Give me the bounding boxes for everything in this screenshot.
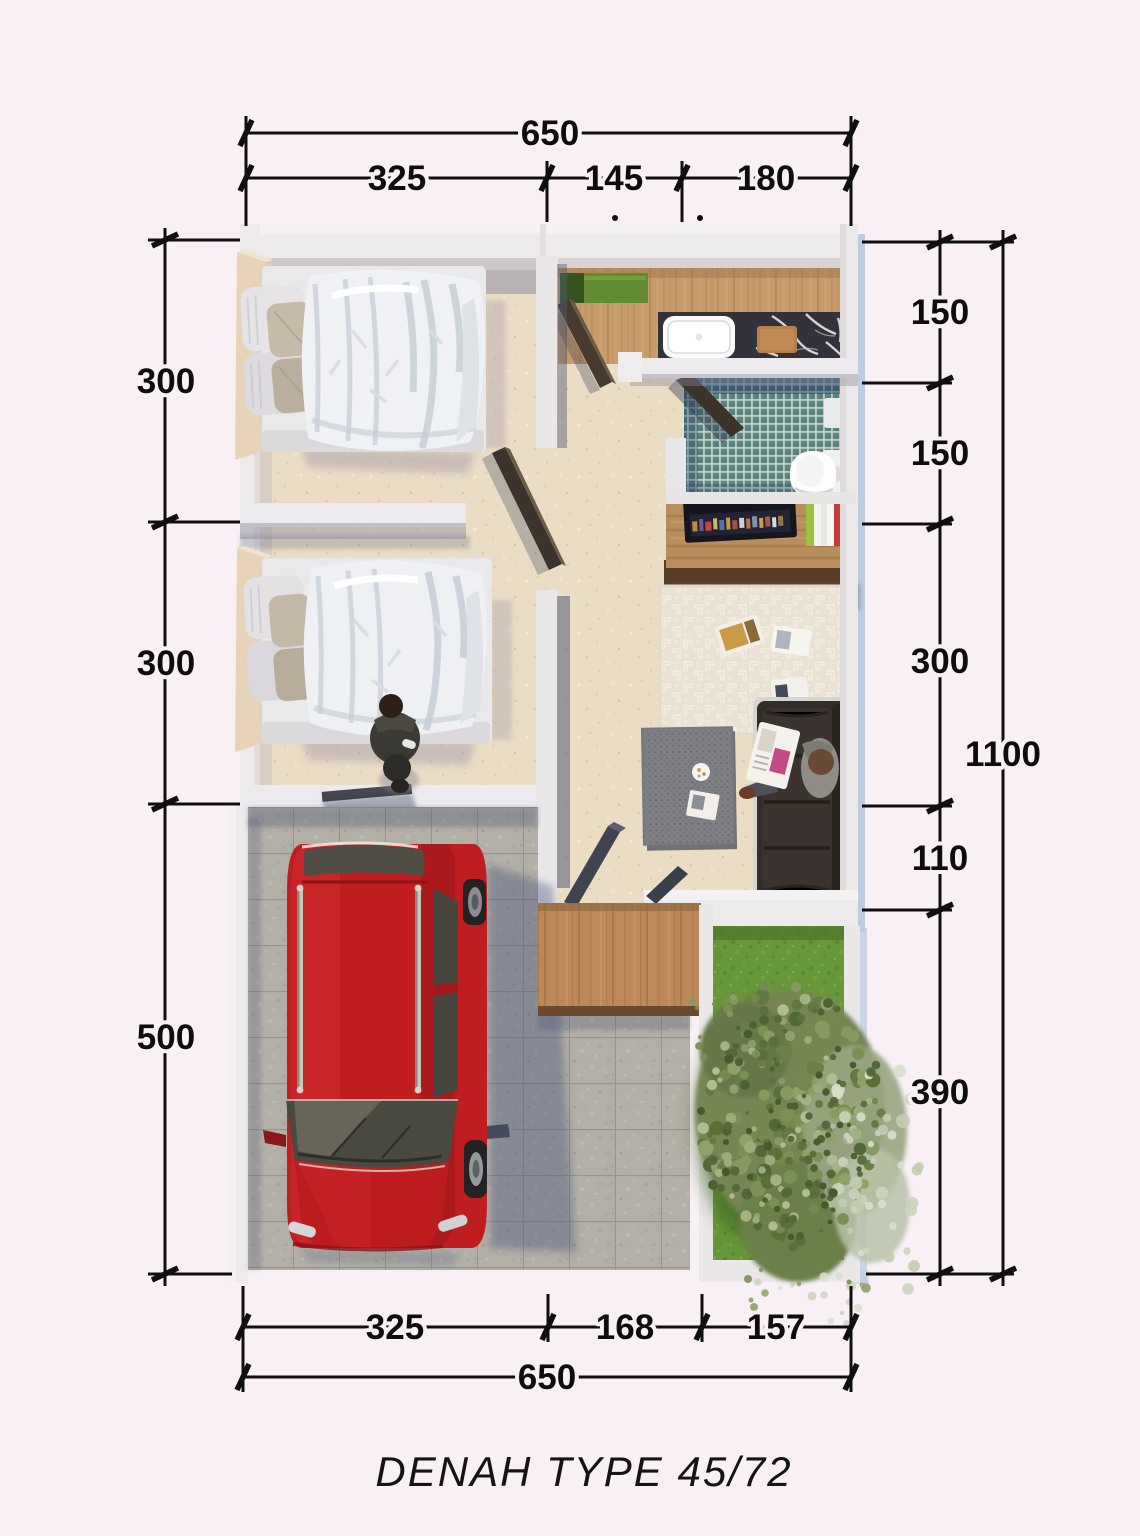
svg-text:110: 110 xyxy=(912,839,968,878)
svg-text:300: 300 xyxy=(911,642,969,681)
svg-text:180: 180 xyxy=(737,159,795,198)
svg-text:168: 168 xyxy=(596,1308,654,1347)
svg-text:650: 650 xyxy=(521,114,579,153)
svg-text:325: 325 xyxy=(366,1308,424,1347)
svg-text:1100: 1100 xyxy=(965,735,1041,774)
svg-text:145: 145 xyxy=(585,159,643,198)
svg-text:650: 650 xyxy=(518,1358,576,1397)
svg-text:DENAH TYPE 45/72: DENAH TYPE 45/72 xyxy=(375,1448,792,1495)
svg-text:500: 500 xyxy=(137,1018,195,1057)
svg-text:150: 150 xyxy=(911,434,969,473)
svg-text:325: 325 xyxy=(368,159,426,198)
svg-text:300: 300 xyxy=(137,644,195,683)
svg-text:150: 150 xyxy=(911,293,969,332)
svg-text:300: 300 xyxy=(137,362,195,401)
svg-text:157: 157 xyxy=(747,1308,805,1347)
svg-text:390: 390 xyxy=(911,1073,969,1112)
